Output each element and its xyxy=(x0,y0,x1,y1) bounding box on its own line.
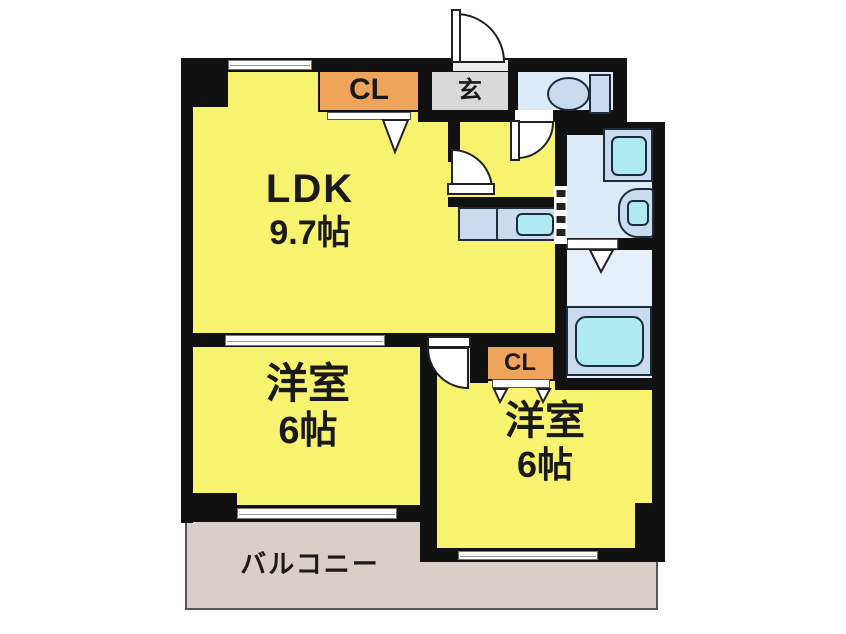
doors-overlay xyxy=(0,0,846,634)
entrance-door-arc xyxy=(456,14,504,62)
closet-top-door-marker xyxy=(383,120,408,152)
balcony-label: バルコニー xyxy=(210,551,410,578)
toilet-door-leaf xyxy=(511,121,519,160)
bedroom-right-area: 6帖 xyxy=(475,446,615,484)
hallway-door-leaf xyxy=(448,184,494,194)
bathroom-door-track xyxy=(567,239,618,249)
bedroom-right-label: 洋室 xyxy=(475,400,615,442)
entrance-label: 玄 xyxy=(432,78,508,103)
bedroom-left-label: 洋室 xyxy=(238,362,378,406)
entrance-door-leaf xyxy=(452,10,460,62)
bedroom-left-area: 6帖 xyxy=(238,412,378,452)
toilet-door-arc xyxy=(517,122,553,158)
ldk-label: LDK xyxy=(230,168,390,210)
bedroom-right-door-arc xyxy=(428,348,468,388)
bathroom-door-marker xyxy=(590,250,613,272)
bedroom-right-door-leaf xyxy=(428,337,470,347)
ldk-area: 9.7帖 xyxy=(230,216,390,252)
floorplan: CL CL xyxy=(0,0,846,634)
